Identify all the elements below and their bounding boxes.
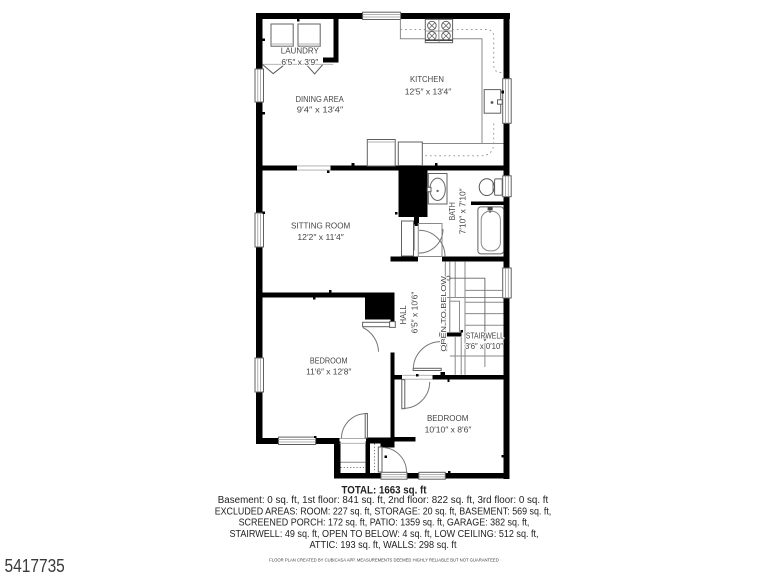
svg-text:LAUNDRY: LAUNDRY — [281, 46, 320, 56]
svg-text:DINING AREA: DINING AREA — [296, 94, 345, 104]
svg-text:ATTIC: 193 sq. ft, WALLS: 298: ATTIC: 193 sq. ft, WALLS: 298 sq. ft — [310, 540, 457, 551]
svg-text:SCREENED PORCH: 172 sq. ft, PA: SCREENED PORCH: 172 sq. ft, PATIO: 1359 … — [239, 518, 530, 529]
svg-text:11′6″ x 12′8″: 11′6″ x 12′8″ — [306, 368, 352, 377]
svg-text:HALL: HALL — [398, 305, 408, 324]
svg-text:EXCLUDED AREAS: ROOM: 227 sq.: EXCLUDED AREAS: ROOM: 227 sq. ft, STORAG… — [215, 507, 552, 518]
svg-text:FLOOR PLAN CREATED BY CUBICASA: FLOOR PLAN CREATED BY CUBICASA APP. MEAS… — [269, 557, 499, 562]
svg-text:10′10″ x 8′6″: 10′10″ x 8′6″ — [425, 426, 472, 435]
svg-text:SITTING ROOM: SITTING ROOM — [291, 221, 350, 231]
svg-text:KITCHEN: KITCHEN — [410, 74, 444, 84]
svg-text:STAIRWELL: 49 sq. ft, OPEN TO: STAIRWELL: 49 sq. ft, OPEN TO BELOW: 4 s… — [229, 529, 538, 540]
svg-text:12′2″ x 11′4″: 12′2″ x 11′4″ — [297, 233, 344, 242]
svg-text:BEDROOM: BEDROOM — [427, 413, 469, 423]
svg-text:3′6″ x 0′10″: 3′6″ x 0′10″ — [465, 342, 503, 351]
svg-text:9′4″ x 13′4″: 9′4″ x 13′4″ — [297, 106, 344, 115]
svg-text:5417735: 5417735 — [5, 556, 65, 576]
svg-text:STAIRWELL: STAIRWELL — [466, 330, 505, 340]
svg-text:6′5″ x 10′6″: 6′5″ x 10′6″ — [411, 291, 420, 333]
svg-text:BATH: BATH — [447, 202, 457, 220]
svg-text:Basement: 0 sq. ft, 1st floor:: Basement: 0 sq. ft, 1st floor: 841 sq. f… — [218, 495, 549, 506]
svg-text:6′5″ x 3′9″: 6′5″ x 3′9″ — [281, 58, 318, 67]
svg-text:12′5″ x 13′4″: 12′5″ x 13′4″ — [405, 87, 452, 96]
svg-text:7′10″ x 7′10″: 7′10″ x 7′10″ — [459, 188, 468, 234]
svg-text:BEDROOM: BEDROOM — [310, 355, 348, 365]
svg-text:OPEN TO BELOW: OPEN TO BELOW — [439, 275, 448, 352]
